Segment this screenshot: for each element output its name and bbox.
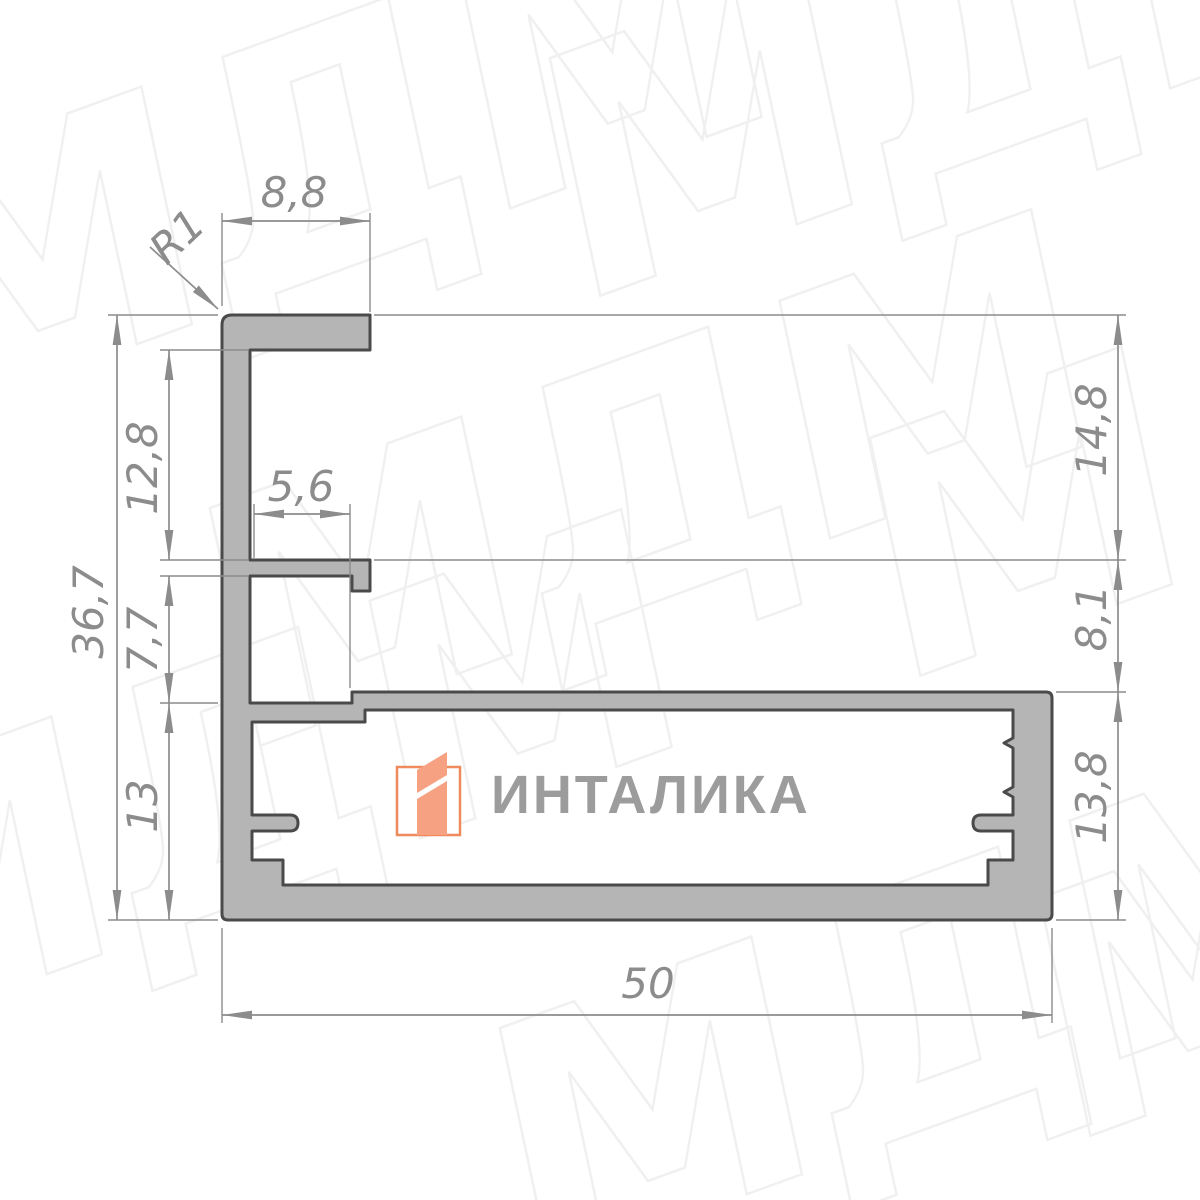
dimension-label-bottom-width: 50 [621, 959, 674, 1008]
dimension-label-groove-width: 5,6 [268, 462, 335, 511]
dimension-label-corner-radius: R1 [140, 199, 214, 273]
dimension-label-lower-left-height: 13 [118, 779, 167, 832]
profile-cross-section-drawing: 36,7 12,8 7,7 13 8,8 [0, 0, 1200, 1200]
dimension-right-bottom-height: 13,8 [1056, 692, 1126, 920]
dimension-label-slot-height: 7,7 [118, 606, 167, 673]
dimension-right-middle-height: 8,1 [1056, 560, 1126, 692]
dimension-corner-radius: R1 [140, 199, 218, 309]
intalika-logo-icon [391, 746, 471, 841]
dimension-right-top-height: 14,8 [374, 315, 1126, 560]
intalika-logo: ИНТАЛИКА [391, 746, 811, 841]
logo-text: ИНТАЛИКА [491, 768, 811, 822]
dimension-label-total-height: 36,7 [64, 565, 113, 659]
dimension-label-right-middle-height: 8,1 [1067, 585, 1116, 652]
dimension-lower-left-height: 13 [118, 703, 218, 920]
dimension-top-width: 8,8 [222, 168, 370, 312]
dimension-bottom-width: 50 [222, 928, 1052, 1023]
dimension-label-upper-offset: 12,8 [118, 421, 167, 515]
dimension-label-top-width: 8,8 [261, 168, 328, 217]
dimension-label-right-bottom-height: 13,8 [1067, 750, 1116, 844]
dimension-label-right-top-height: 14,8 [1067, 383, 1116, 477]
product-image: МДМ МДМ МДМ МДМ МДМ МДМ МДМ 36,7 12,8 [0, 0, 1200, 1200]
